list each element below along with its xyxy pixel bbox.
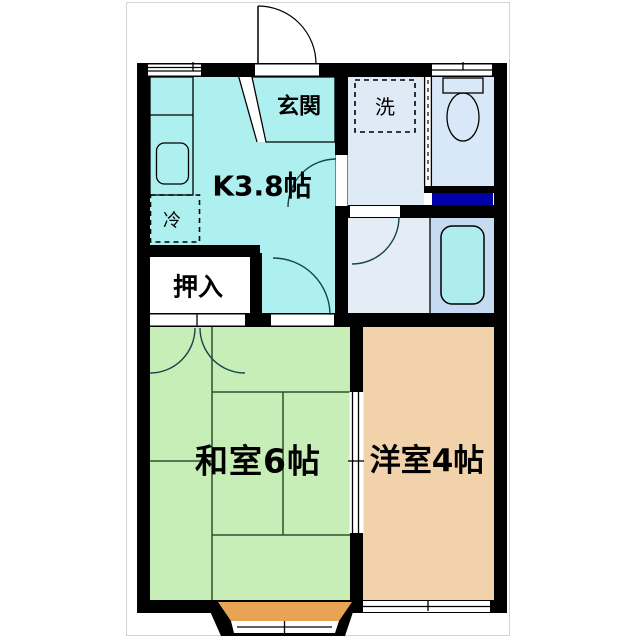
- entrance-doorway: [255, 65, 319, 76]
- kitchen-label: K3.8帖: [212, 170, 311, 203]
- bathroom-doorway: [350, 206, 400, 217]
- bathtub-icon: [441, 226, 484, 304]
- kitchen-doorway: [271, 315, 334, 326]
- floor-plan-page: K3.8帖 玄関 洗 冷 押入 和室6帖 洋室4帖: [0, 0, 640, 640]
- floor-plan: K3.8帖 玄関 洗 冷 押入 和室6帖 洋室4帖: [0, 0, 640, 640]
- entrance-label: 玄関: [277, 94, 321, 120]
- washroom-doorway: [336, 155, 348, 206]
- refrigerator-label: 冷: [163, 211, 181, 232]
- closet-label: 押入: [173, 273, 223, 302]
- toilet-sliding-door: [424, 77, 432, 186]
- bathroom-floor: [348, 218, 430, 313]
- laundry-label: 洗: [375, 95, 395, 119]
- window-western-room: [363, 601, 490, 612]
- bay-window: [205, 600, 357, 636]
- shelf-block: [432, 193, 493, 206]
- western-room-label: 洋室4帖: [370, 443, 485, 479]
- japanese-room-label: 和室6帖: [195, 442, 321, 481]
- closet-doorway: [150, 315, 245, 326]
- room-sliding-door: [348, 392, 364, 533]
